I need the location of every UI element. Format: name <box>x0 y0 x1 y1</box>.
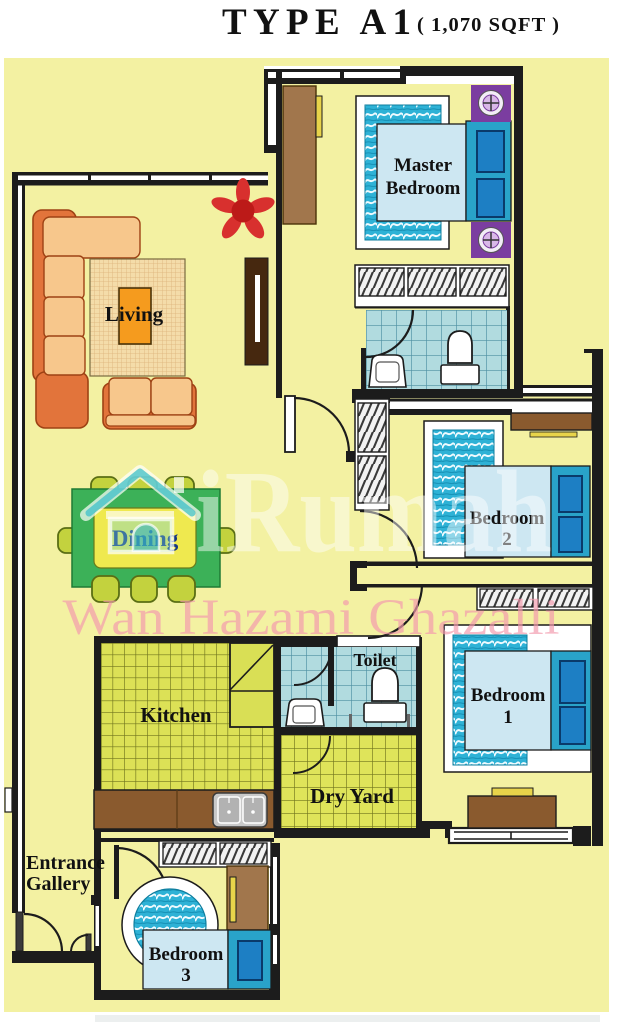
svg-text:Bedroom: Bedroom <box>149 944 224 965</box>
svg-text:Bedroom: Bedroom <box>386 178 461 199</box>
svg-text:iRumah: iRumah <box>196 446 552 577</box>
svg-text:Toilet: Toilet <box>353 650 396 670</box>
svg-text:3: 3 <box>181 965 191 986</box>
svg-text:Wan Hazami Ghazalli: Wan Hazami Ghazalli <box>63 590 560 646</box>
svg-text:1: 1 <box>503 707 513 728</box>
svg-text:Bedroom: Bedroom <box>471 685 546 706</box>
svg-text:Master: Master <box>394 155 453 176</box>
svg-text:( 1,070 SQFT ): ( 1,070 SQFT ) <box>417 14 559 36</box>
svg-text:Living: Living <box>105 302 164 326</box>
svg-text:Dry Yard: Dry Yard <box>310 784 394 808</box>
svg-text:Gallery: Gallery <box>26 873 90 895</box>
svg-text:Kitchen: Kitchen <box>140 703 211 727</box>
svg-text:Entrance: Entrance <box>26 852 105 874</box>
